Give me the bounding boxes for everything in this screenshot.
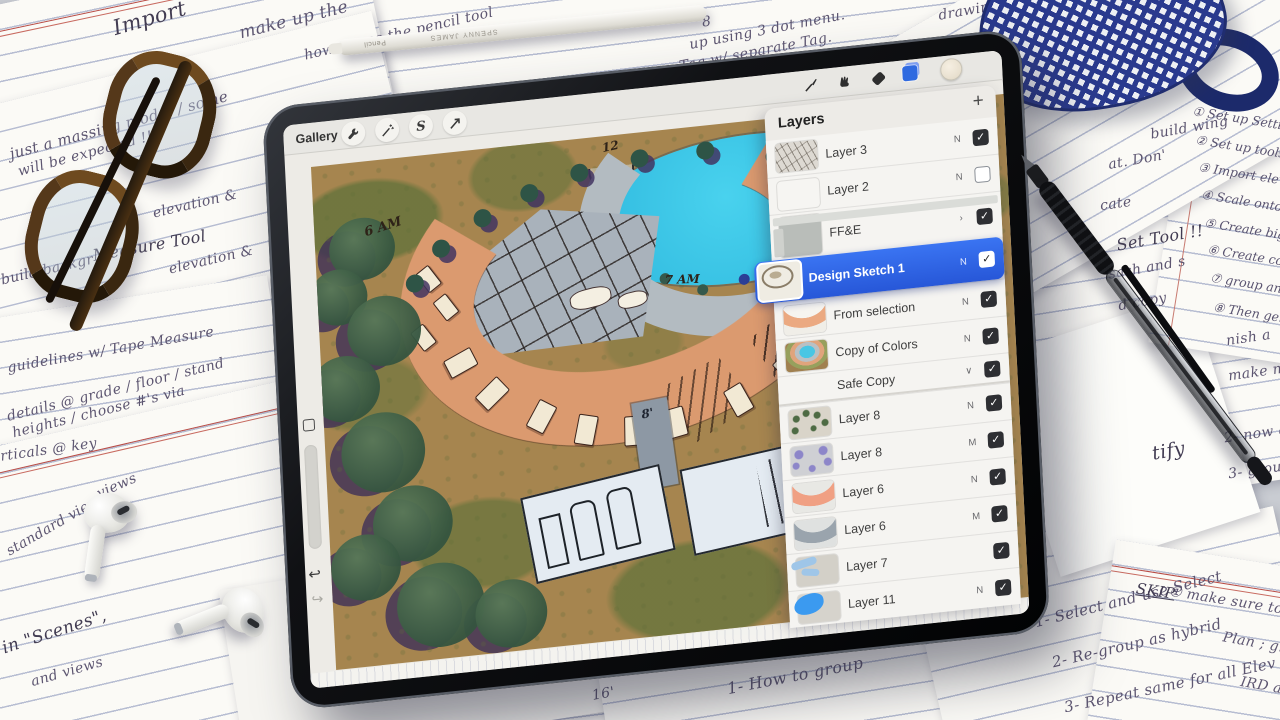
layer-name: Layer 6 [842, 474, 959, 500]
group-chevron[interactable]: ∨ [961, 365, 976, 378]
color-swatch-button[interactable] [940, 57, 963, 81]
layers-button[interactable] [902, 65, 920, 84]
annotation-7am: 7 AM [665, 272, 700, 287]
thumbnail-spacer [787, 385, 829, 390]
pencil-brand-text: Pencil [363, 38, 386, 47]
layer-visibility-checkbox[interactable]: ✓ [984, 360, 1001, 378]
room-sketch [569, 498, 605, 561]
tree [339, 408, 427, 497]
brush-icon [803, 76, 820, 94]
adjustments-button[interactable] [375, 117, 400, 143]
layer-thumbnail [790, 443, 833, 476]
blend-mode-button[interactable]: N [967, 473, 982, 486]
room-sketch [538, 513, 569, 569]
blend-mode-button[interactable]: N [951, 171, 966, 184]
layer-thumbnail [788, 406, 831, 439]
layers-panel: Layers + Layer 3 N ✓ Layer 2 N [764, 85, 1021, 623]
ipad: 6 AM 12 7 AM 8' Gallery S [262, 28, 1050, 711]
layer-visibility-checkbox[interactable]: ✓ [993, 542, 1010, 560]
magic-wand-icon [379, 122, 395, 139]
layer-thumbnail [792, 480, 835, 513]
smudge-finger-icon [836, 73, 853, 91]
blend-mode-button[interactable]: M [965, 436, 980, 449]
selection-button[interactable]: S [408, 113, 433, 139]
layer-name: Layer 6 [844, 511, 961, 537]
undo-button[interactable]: ↩ [308, 564, 321, 583]
layer-visibility-checkbox[interactable]: ✓ [976, 207, 993, 225]
move-arrow-icon [447, 114, 463, 131]
layer-thumbnail [796, 553, 839, 586]
blend-mode-button[interactable]: N [956, 255, 971, 268]
wrench-icon [345, 125, 361, 142]
layer-name: Layer 3 [825, 134, 942, 160]
layer-visibility-checkbox[interactable]: ✓ [972, 128, 989, 146]
layer-thumbnail [794, 517, 837, 550]
blend-mode-button[interactable]: N [958, 295, 973, 308]
layer-thumbnail [783, 302, 826, 335]
add-layer-button[interactable]: + [972, 90, 984, 113]
layer-name: Copy of Colors [835, 333, 952, 359]
layer-visibility-checkbox[interactable]: ✓ [987, 431, 1004, 449]
layer-visibility-checkbox[interactable] [974, 166, 991, 184]
annotation-walk-width: 8' [640, 405, 654, 421]
room-sketch [605, 485, 642, 550]
layers-panel-title: Layers [778, 111, 825, 132]
eraser-icon [871, 71, 886, 86]
layer-thumbnail [798, 590, 841, 623]
actions-button[interactable] [341, 120, 366, 146]
brush-size-slider[interactable] [304, 444, 322, 549]
layer-name: Layer 2 [827, 172, 944, 198]
tree [474, 576, 549, 651]
layer-visibility-checkbox[interactable]: ✓ [978, 250, 995, 268]
airpod-stem [84, 524, 107, 582]
brush-button[interactable] [801, 74, 822, 96]
blend-mode-button[interactable]: N [972, 584, 987, 597]
layer-visibility-checkbox[interactable]: ✓ [982, 327, 999, 345]
erase-button[interactable] [868, 67, 889, 89]
layer-visibility-checkbox[interactable]: ✓ [989, 468, 1006, 486]
tree [395, 558, 487, 651]
layer-list: Layer 3 N ✓ Layer 2 N FF&E › ✓ [766, 117, 1021, 623]
layer-thumbnail [775, 140, 818, 173]
layer-thumbnail [777, 177, 820, 210]
layer-visibility-checkbox[interactable]: ✓ [980, 290, 997, 308]
layer-name: Safe Copy [837, 366, 954, 392]
blend-mode-button[interactable]: M [968, 510, 983, 523]
ipad-screen: 6 AM 12 7 AM 8' Gallery S [283, 50, 1030, 689]
layer-thumbnail [779, 213, 823, 257]
layer-thumbnail [785, 339, 828, 372]
selection-s-icon: S [416, 118, 426, 134]
layer-name: Design Sketch 1 [808, 256, 948, 285]
gallery-button[interactable]: Gallery [295, 128, 338, 146]
layer-visibility-checkbox[interactable]: ✓ [991, 505, 1008, 523]
layer-name: Layer 11 [848, 585, 965, 611]
blend-mode-button[interactable]: N [950, 133, 965, 146]
shrub-dots [311, 165, 330, 185]
layers-icon [902, 65, 918, 82]
modify-button[interactable] [303, 418, 316, 431]
pencil-engraving: SPENNY JAMES [429, 28, 498, 42]
desk-scene: Import make up the 8 just a massing mode… [0, 0, 1280, 720]
blend-mode-button[interactable]: N [963, 399, 978, 412]
transform-button[interactable] [442, 110, 467, 136]
airpod-left [81, 485, 174, 595]
blend-mode-button[interactable] [971, 552, 986, 554]
building-sketch [520, 464, 675, 584]
layer-thumbnail [758, 261, 802, 301]
redo-button[interactable]: ↪ [311, 590, 324, 608]
smudge-button[interactable] [834, 71, 855, 93]
blend-mode-button[interactable]: N [959, 332, 974, 345]
layer-visibility-checkbox[interactable]: ✓ [986, 394, 1003, 412]
layer-name: Layer 7 [846, 548, 963, 574]
layer-visibility-checkbox[interactable]: ✓ [995, 579, 1012, 597]
group-chevron[interactable]: › [953, 212, 968, 225]
layer-name: Layer 8 [838, 400, 955, 426]
layer-name: Layer 8 [840, 437, 957, 463]
layer-name: From selection [833, 296, 950, 322]
